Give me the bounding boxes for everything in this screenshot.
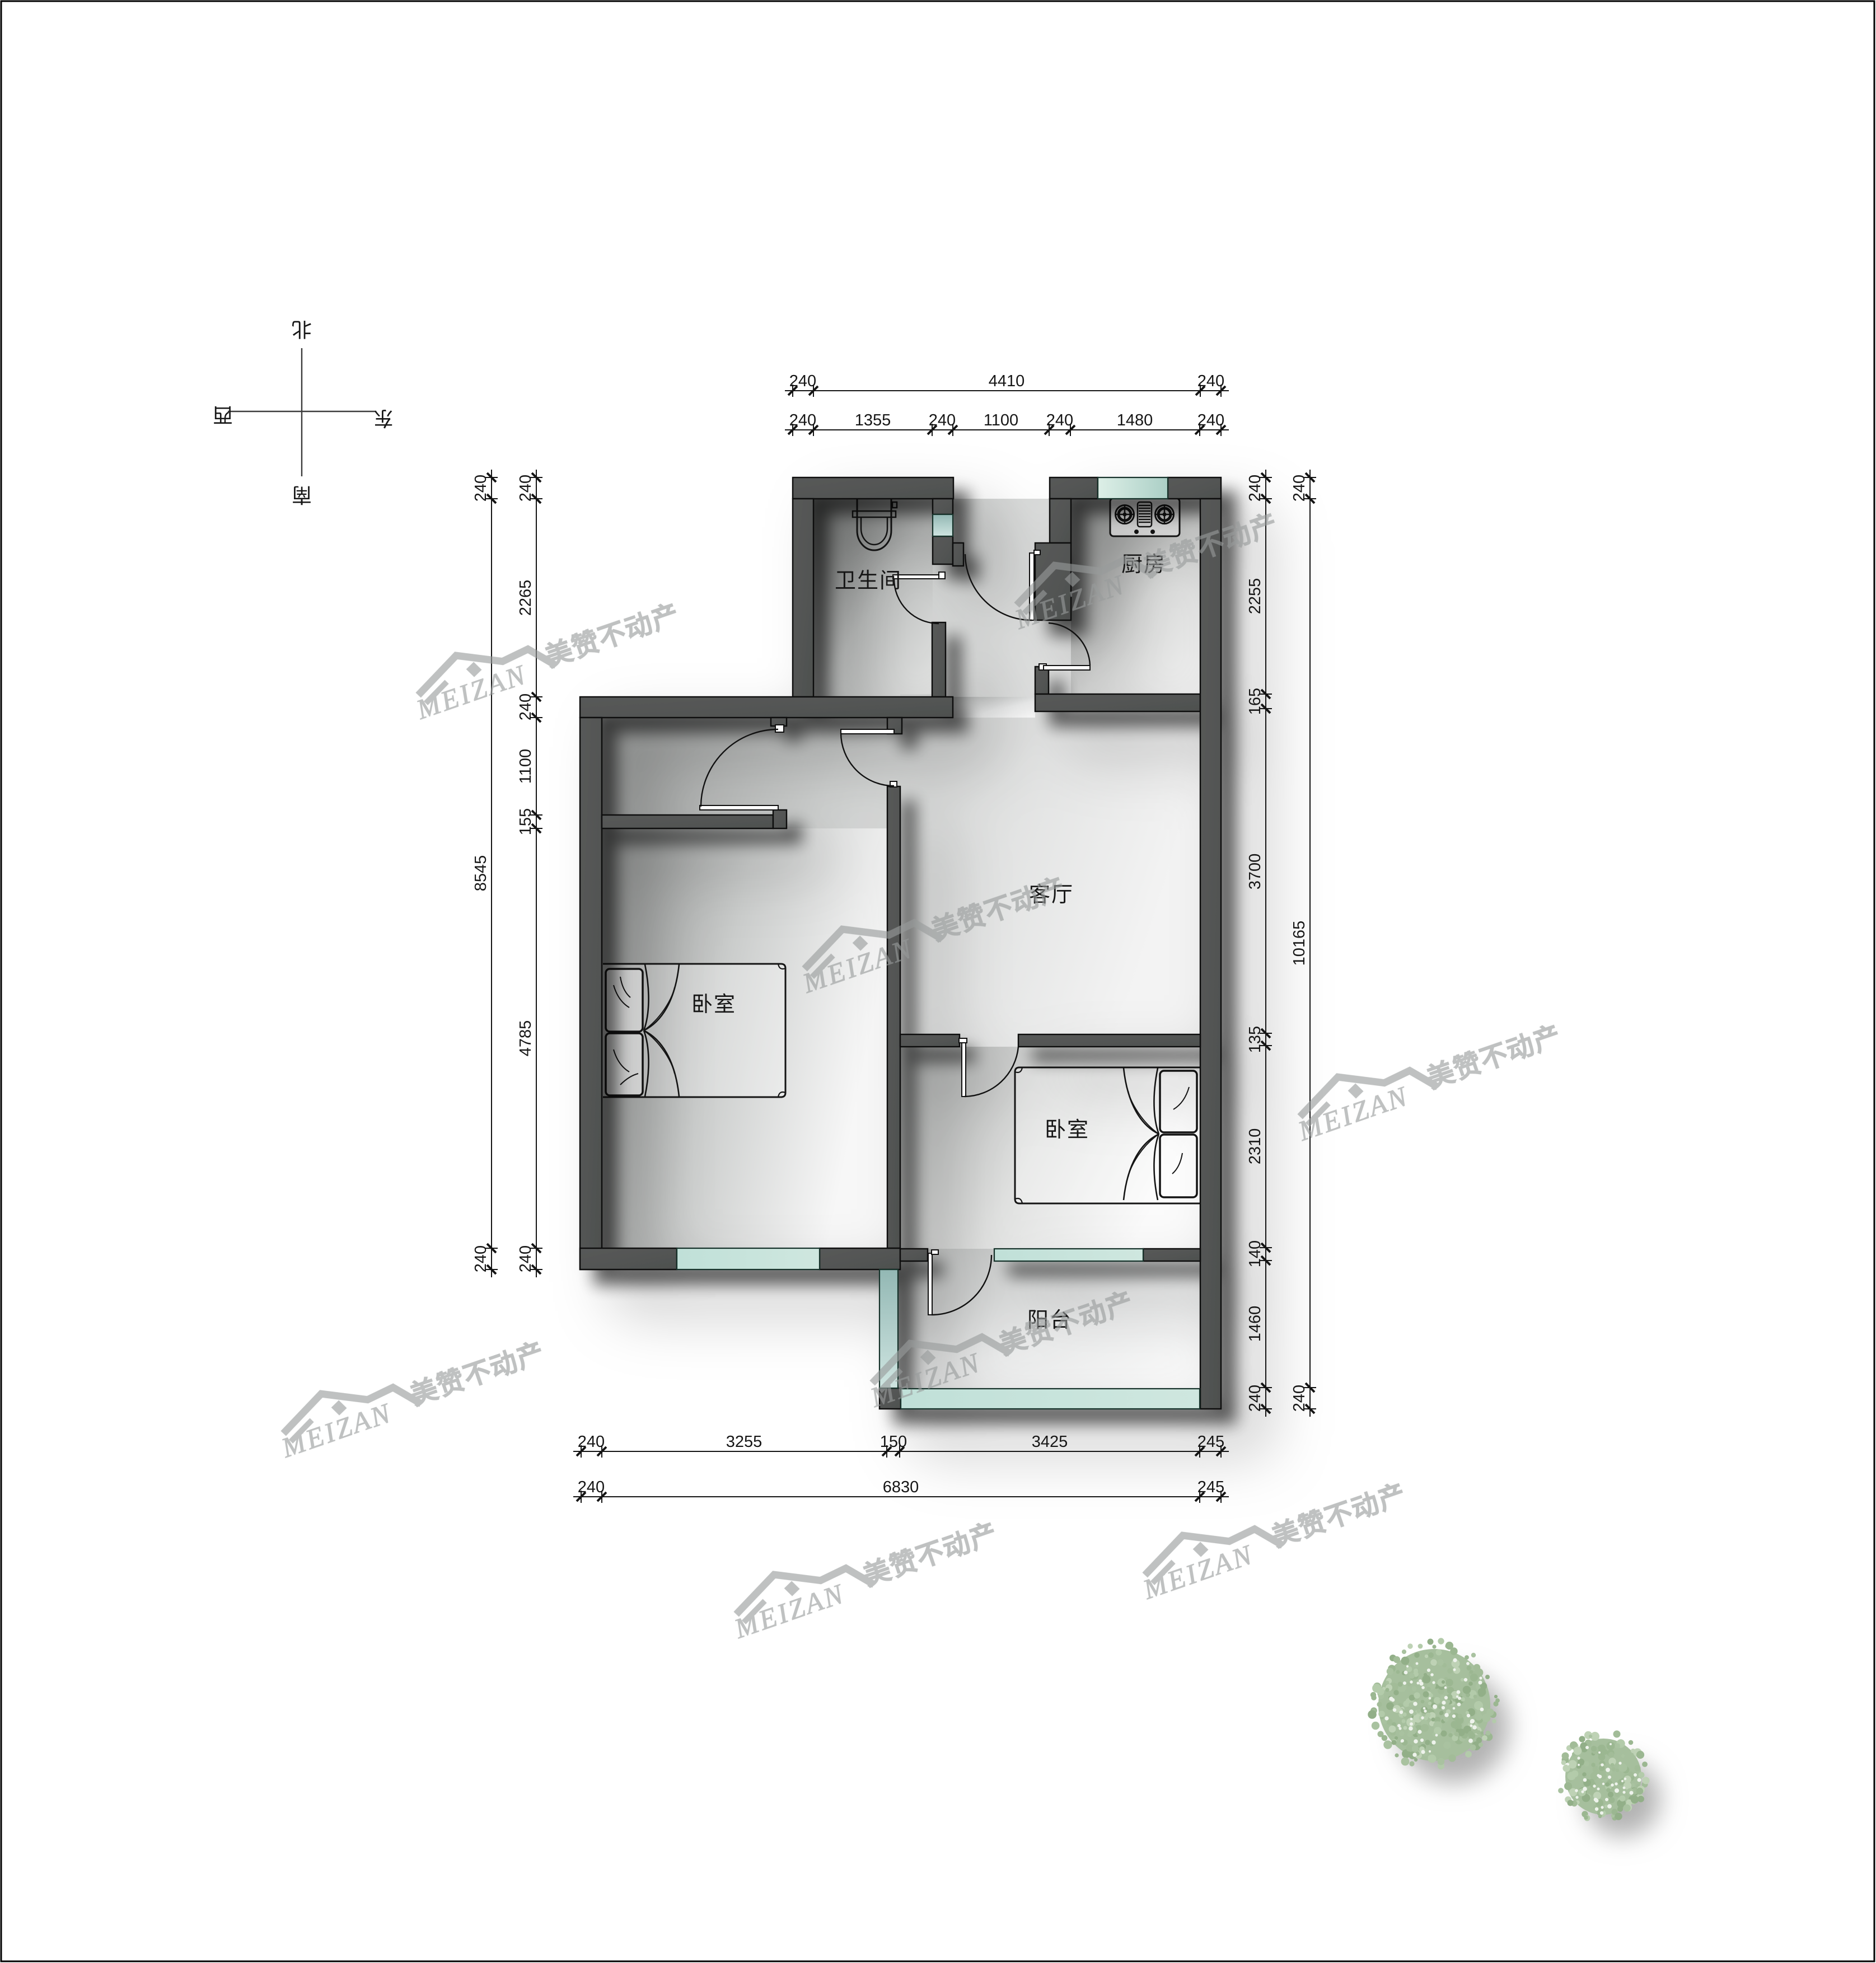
svg-text:2265: 2265 xyxy=(517,580,535,616)
svg-text:150: 150 xyxy=(880,1433,907,1451)
svg-text:240: 240 xyxy=(578,1478,605,1496)
svg-text:165: 165 xyxy=(1246,688,1264,715)
svg-text:240: 240 xyxy=(789,411,816,429)
svg-text:3425: 3425 xyxy=(1032,1433,1068,1451)
svg-text:2255: 2255 xyxy=(1246,578,1264,615)
svg-text:1100: 1100 xyxy=(517,749,535,784)
svg-text:245: 245 xyxy=(1197,1433,1224,1451)
svg-text:10165: 10165 xyxy=(1290,921,1308,966)
svg-text:135: 135 xyxy=(1246,1026,1264,1053)
svg-text:东: 东 xyxy=(373,407,394,430)
svg-text:240: 240 xyxy=(1246,475,1264,502)
svg-text:1480: 1480 xyxy=(1117,411,1153,429)
svg-text:北: 北 xyxy=(292,318,312,341)
svg-text:卧室: 卧室 xyxy=(1045,1118,1089,1142)
svg-text:4410: 4410 xyxy=(989,372,1025,390)
svg-text:240: 240 xyxy=(517,475,535,502)
svg-text:240: 240 xyxy=(929,411,956,429)
svg-text:4785: 4785 xyxy=(517,1020,535,1057)
svg-text:240: 240 xyxy=(1046,411,1073,429)
svg-text:8545: 8545 xyxy=(472,855,490,892)
svg-text:3255: 3255 xyxy=(726,1433,762,1451)
svg-text:240: 240 xyxy=(789,372,816,390)
svg-text:卧室: 卧室 xyxy=(691,993,736,1016)
svg-text:1100: 1100 xyxy=(984,411,1018,429)
svg-text:240: 240 xyxy=(1197,411,1224,429)
svg-text:240: 240 xyxy=(517,694,535,720)
svg-text:155: 155 xyxy=(517,808,535,835)
svg-text:240: 240 xyxy=(1290,475,1308,502)
svg-text:240: 240 xyxy=(1290,1385,1308,1412)
svg-text:240: 240 xyxy=(472,1245,490,1272)
svg-text:245: 245 xyxy=(1197,1478,1224,1496)
svg-text:6830: 6830 xyxy=(883,1478,919,1496)
svg-text:240: 240 xyxy=(578,1433,605,1451)
svg-text:240: 240 xyxy=(517,1245,535,1272)
svg-text:140: 140 xyxy=(1246,1240,1264,1267)
svg-text:西: 西 xyxy=(213,404,233,427)
svg-text:240: 240 xyxy=(472,475,490,502)
svg-text:1460: 1460 xyxy=(1246,1306,1264,1342)
svg-text:2310: 2310 xyxy=(1246,1128,1264,1165)
svg-text:南: 南 xyxy=(292,484,312,507)
svg-text:240: 240 xyxy=(1197,372,1224,390)
svg-text:1355: 1355 xyxy=(855,411,891,429)
svg-text:240: 240 xyxy=(1246,1385,1264,1412)
svg-text:卫生间: 卫生间 xyxy=(835,569,902,593)
svg-text:3700: 3700 xyxy=(1246,854,1264,890)
